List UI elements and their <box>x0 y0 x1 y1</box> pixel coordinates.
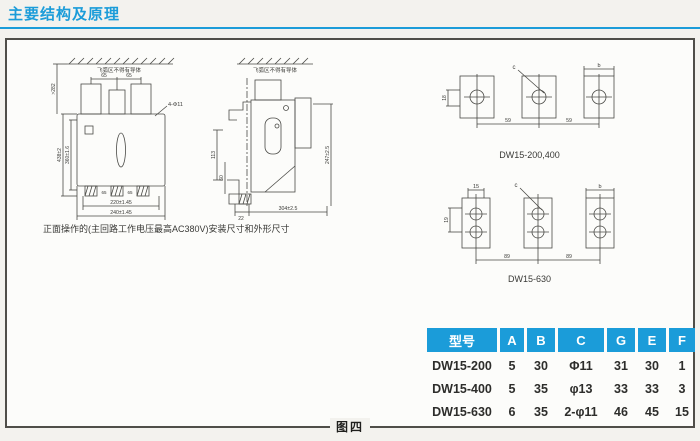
label-b: b <box>598 184 601 190</box>
table-cell: 5 <box>500 357 524 375</box>
dim-height: 438±2 <box>57 148 63 162</box>
side-view-drawing: 飞弧区不得有导体 113 60 22 <box>189 54 339 224</box>
dim-height: 247±2.5 <box>325 146 331 164</box>
table-cell: 46 <box>607 403 635 421</box>
ceiling-hatch <box>67 58 174 64</box>
table-cell: 33 <box>638 380 666 398</box>
arc-chutes <box>81 84 151 114</box>
terminal-plates <box>462 194 614 264</box>
table-cell: Φ11 <box>558 357 604 375</box>
table-cell: 35 <box>527 403 555 421</box>
arc-zone-note: 飞弧区不得有导体 <box>253 66 298 74</box>
dim-foot-right: 65 <box>127 190 133 195</box>
dim-mount-height: 360±1.6 <box>65 146 71 164</box>
dim-depth: 304±2.5 <box>279 206 298 212</box>
table-cell: 30 <box>638 357 666 375</box>
pitch-dimension: 65 65 <box>91 73 141 90</box>
body-outline <box>227 78 311 206</box>
figure-number-label: 图四 <box>330 418 370 435</box>
dim-113: 113 <box>211 151 217 159</box>
dim-pitch2: 59 <box>566 118 572 124</box>
left-dimensions: >282 438±2 360±1.6 <box>51 64 77 196</box>
table-header-model: 型号 <box>427 328 497 352</box>
dim-pitch1: 89 <box>504 254 510 260</box>
dimensions: 59 59 c b 18 <box>442 63 614 124</box>
table-header-f: F <box>669 328 695 352</box>
table-cell: 5 <box>500 380 524 398</box>
dimensions: 15 c b 19 89 89 <box>444 183 614 260</box>
model-cell: DW15-630 <box>427 403 497 421</box>
dim-60: 60 <box>219 175 225 181</box>
table-cell: 6 <box>500 403 524 421</box>
table-cell: φ13 <box>558 380 604 398</box>
dim-holes: 4-Φ11 <box>168 102 183 108</box>
label-c: c <box>513 65 516 71</box>
table-cell: 1 <box>669 357 695 375</box>
terminals-large-drawing: 15 c b 19 89 89 <box>432 180 627 272</box>
table-cell: 30 <box>527 357 555 375</box>
body-outline <box>77 114 165 186</box>
dim-15: 15 <box>473 184 479 190</box>
table-cell: 35 <box>527 380 555 398</box>
title-underline <box>0 27 700 29</box>
table-header-b: B <box>527 328 555 352</box>
figure-frame: 飞弧区不得有导体 65 65 4-Φ11 65 <box>5 38 695 428</box>
dim-mount-width: 220±1.45 <box>110 200 132 206</box>
model-cell: DW15-200 <box>427 357 497 375</box>
terminal-feet: 65 65 <box>85 186 149 196</box>
spec-table: 型号 A B C G E F DW15-200 5 30 Φ11 31 30 1… <box>427 328 695 421</box>
terminals-small-drawing: 59 59 c b 18 <box>432 60 627 148</box>
label-c: c <box>515 183 518 189</box>
table-header-g: G <box>607 328 635 352</box>
dim-pitch1: 59 <box>505 118 511 124</box>
dim-18: 18 <box>442 95 448 101</box>
front-view-caption: 正面操作的(主回路工作电压最高AC380V)安装尺寸和外形尺寸 <box>43 224 343 235</box>
table-header-e: E <box>638 328 666 352</box>
terminals-large-caption: DW15-630 <box>432 274 627 285</box>
terminal-plates <box>460 74 614 128</box>
dim-clearance: >282 <box>51 83 57 94</box>
table-cell: 31 <box>607 357 635 375</box>
model-cell: DW15-400 <box>427 380 497 398</box>
label-b: b <box>597 63 600 69</box>
table-cell: 33 <box>607 380 635 398</box>
table-cell: 45 <box>638 403 666 421</box>
table-cell: 15 <box>669 403 695 421</box>
table-cell: 2-φ11 <box>558 403 604 421</box>
dim-19: 19 <box>444 217 450 223</box>
dim-pitch-left: 65 <box>101 73 107 79</box>
dim-22: 22 <box>238 216 244 222</box>
table-header-c: C <box>558 328 604 352</box>
page-title: 主要结构及原理 <box>8 3 120 24</box>
ceiling-hatch <box>237 58 313 64</box>
terminals-small-caption: DW15-200,400 <box>432 150 627 161</box>
dim-pitch2: 89 <box>566 254 572 260</box>
dim-pitch-right: 65 <box>126 73 132 79</box>
table-header-a: A <box>500 328 524 352</box>
dim-foot-left: 65 <box>101 190 107 195</box>
dim-width: 240±1.45 <box>110 210 132 216</box>
table-cell: 3 <box>669 380 695 398</box>
